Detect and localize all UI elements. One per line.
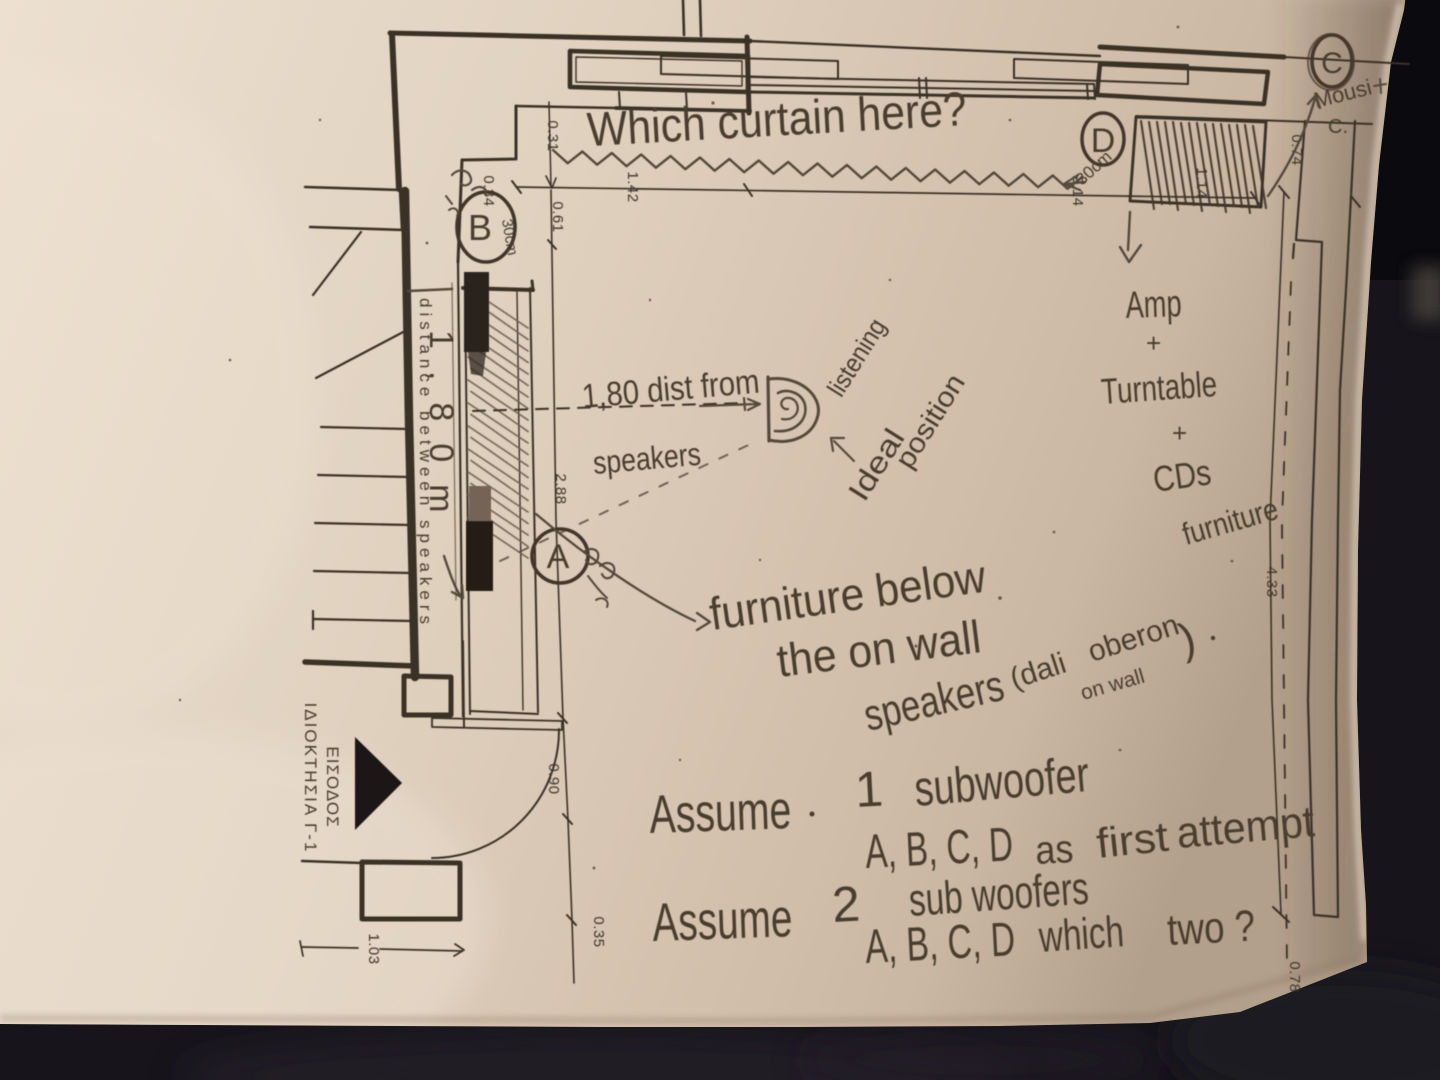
svg-text:ΙΔΙΟΚΤΗΣΙΑ Γ-1: ΙΔΙΟΚΤΗΣΙΑ Γ-1 <box>301 703 320 854</box>
svg-text:+: + <box>1172 418 1187 448</box>
svg-text:C.: C. <box>1328 116 1348 138</box>
svg-text:1: 1 <box>854 761 885 818</box>
svg-text:Turntable: Turntable <box>1100 363 1219 412</box>
svg-text:Amp: Amp <box>1125 283 1182 327</box>
svg-text:A, B, C, D: A, B, C, D <box>864 913 1017 974</box>
svg-text:0.31: 0.31 <box>544 120 561 151</box>
svg-text:C: C <box>1321 47 1343 80</box>
svg-text:0.35: 0.35 <box>590 916 607 947</box>
svg-text:Assume: Assume <box>651 888 793 953</box>
svg-text:B: B <box>468 207 492 248</box>
svg-text:0.78: 0.78 <box>1286 961 1303 992</box>
svg-text:Assume: Assume <box>648 780 792 845</box>
svg-text:1.03: 1.03 <box>365 933 382 964</box>
svg-text:1,80m: 1,80m <box>422 330 460 535</box>
svg-text:first: first <box>1094 813 1171 867</box>
svg-text:2: 2 <box>831 876 862 933</box>
svg-text:A: A <box>547 538 570 576</box>
svg-text:2.88: 2.88 <box>552 473 569 504</box>
svg-text:ΕΙΣΟΔΟΣ: ΕΙΣΟΔΟΣ <box>323 746 342 827</box>
svg-text:which: which <box>1037 907 1126 962</box>
svg-text:+: + <box>1146 328 1161 358</box>
svg-text:1.14: 1.14 <box>1193 167 1210 198</box>
svg-text:two ?: two ? <box>1166 901 1256 955</box>
svg-text:1.42: 1.42 <box>624 171 641 202</box>
svg-text:4.33: 4.33 <box>1263 566 1280 597</box>
svg-text:CDs: CDs <box>1150 451 1213 500</box>
